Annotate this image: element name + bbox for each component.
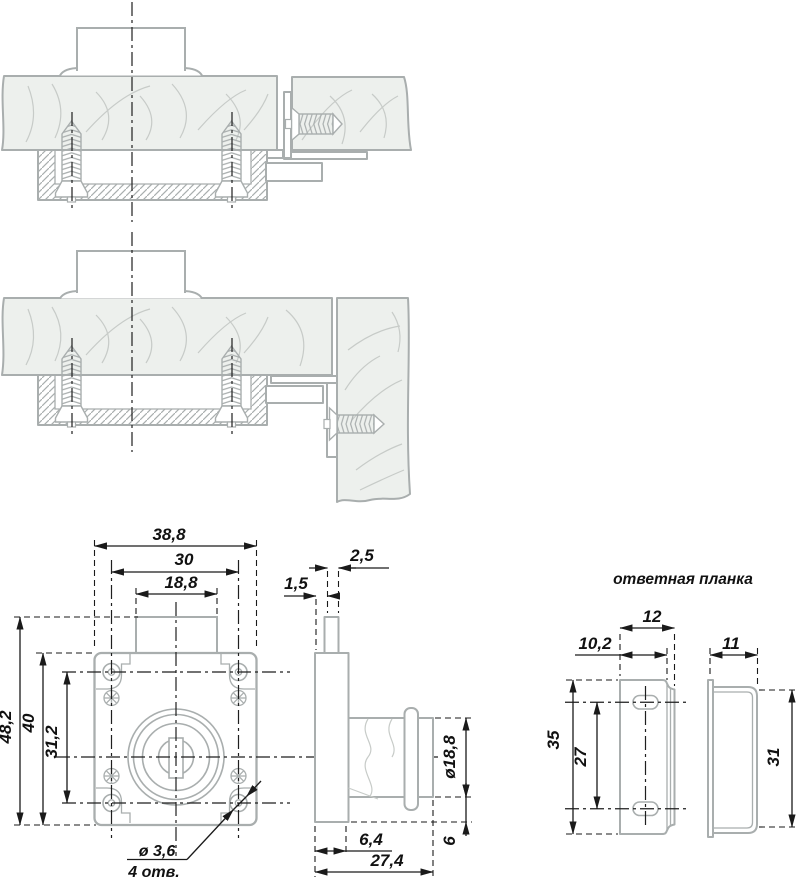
latch-side — [325, 617, 339, 655]
note-hole-dia: ø 3,6 — [139, 843, 176, 860]
side-view: 1,5 2,5 ø18,8 6 6,4 27,4 — [284, 546, 472, 877]
dim-height-holes: 31,2 — [42, 725, 61, 759]
latch-bolt — [266, 386, 323, 403]
cylinder-housing — [77, 28, 185, 71]
dim-latch-thickness: 2,5 — [349, 546, 374, 565]
lock-technical-drawing: 38,8 30 18,8 48,2 40 31,2 ø 3,6 4 отв. — [0, 0, 800, 887]
latch-bolt — [266, 163, 322, 181]
dim-base-height: 6 — [440, 836, 459, 846]
case-wall-hatch — [39, 151, 55, 199]
strike-plate-title: ответная планка — [613, 571, 753, 588]
front-view: 38,8 30 18,8 48,2 40 31,2 ø 3,6 4 отв. — [0, 525, 438, 881]
dim-width-total: 38,8 — [152, 525, 186, 544]
wood-panel-top — [2, 298, 332, 375]
dim-case-depth: 6,4 — [359, 830, 383, 849]
cylinder-side — [349, 718, 434, 797]
dim-height-body: 40 — [19, 713, 38, 733]
case-wall-hatch — [39, 376, 55, 424]
dim-strike-height: 35 — [544, 730, 563, 749]
dim-total-depth: 27,4 — [369, 851, 404, 870]
section-view-corner — [2, 232, 410, 502]
technical-drawing-page: 38,8 30 18,8 48,2 40 31,2 ø 3,6 4 отв. — [0, 0, 800, 887]
strike-plate-lip — [284, 152, 367, 159]
case-wall-hatch — [251, 151, 266, 199]
case-wall-hatch — [251, 376, 266, 424]
dim-width-cylinder: 18,8 — [164, 573, 198, 592]
dim-strike-bend: 10,2 — [578, 634, 612, 653]
cylinder-flange-side — [405, 708, 419, 810]
case-step — [267, 150, 283, 158]
dim-width-holes: 30 — [175, 550, 194, 569]
strike-plate-views: ответная планка 12 10,2 11 35 27 31 — [544, 571, 798, 837]
dimensions: 1,5 2,5 ø18,8 6 6,4 27,4 — [284, 546, 472, 877]
note-hole-count: 4 отв. — [127, 864, 179, 881]
dim-strike-width: 12 — [643, 607, 662, 626]
dim-height-total: 48,2 — [0, 710, 15, 745]
strike-plate-lip — [271, 376, 337, 383]
dim-strike-hole-spacing: 27 — [571, 746, 590, 767]
cylinder-housing — [77, 251, 185, 293]
dim-latch-offset: 1,5 — [284, 574, 308, 593]
strike-plate-side — [713, 687, 757, 833]
dim-strike-side-depth: 11 — [722, 634, 740, 653]
section-view-top — [2, 2, 411, 222]
dim-strike-side-height: 31 — [764, 748, 783, 767]
dim-cylinder-dia: ø18,8 — [440, 735, 459, 779]
lock-body-side — [315, 653, 349, 822]
